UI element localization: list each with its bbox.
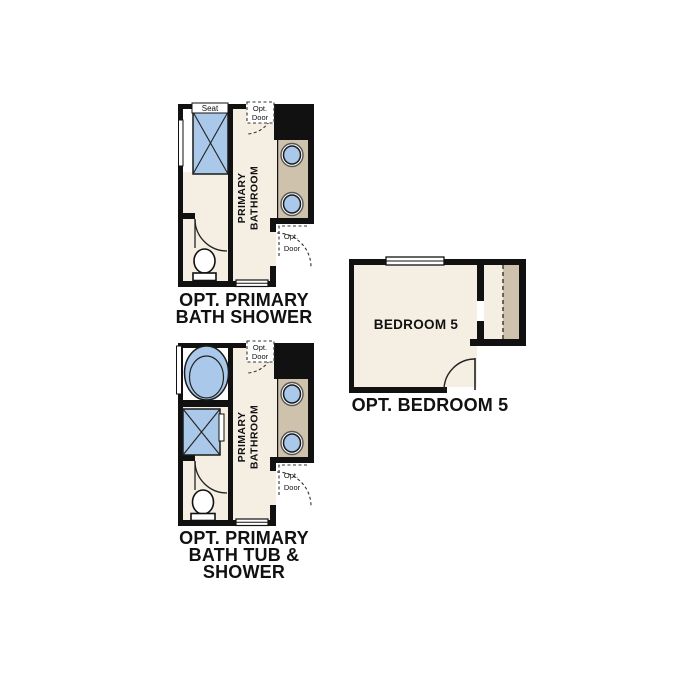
- svg-text:Opt.: Opt.: [253, 343, 267, 352]
- room-name: PRIMARY BATHROOM: [236, 166, 261, 230]
- svg-text:Door: Door: [252, 352, 269, 361]
- sink: [281, 383, 303, 406]
- sink: [281, 432, 303, 455]
- svg-text:Opt.: Opt.: [284, 232, 298, 241]
- shower: [183, 409, 224, 455]
- plan-opt-bedroom-5: BEDROOM 5: [345, 253, 530, 398]
- svg-text:BATHROOM: BATHROOM: [249, 166, 261, 230]
- sink: [281, 144, 303, 167]
- bath-tub-shower-caption: OPT. PRIMARY BATH TUB & SHOWER: [168, 530, 320, 581]
- svg-text:Opt.: Opt.: [284, 471, 298, 480]
- toilet: [193, 249, 216, 281]
- toilet: [191, 490, 215, 521]
- floorplan-sheet: Seat Opt. Door Opt. Door PRIMARY B: [0, 0, 687, 687]
- bath-shower-caption: OPT. PRIMARY BATH SHOWER: [168, 292, 320, 326]
- caption-line: BATH SHOWER: [168, 309, 320, 326]
- svg-text:Door: Door: [252, 113, 269, 122]
- caption-line: SHOWER: [168, 564, 320, 581]
- svg-text:PRIMARY: PRIMARY: [236, 412, 248, 463]
- room-name: BEDROOM 5: [374, 317, 459, 332]
- plan-opt-primary-bath-shower: Seat Opt. Door Opt. Door PRIMARY B: [176, 98, 316, 290]
- closet: [484, 265, 519, 339]
- sink: [281, 193, 303, 216]
- window: [236, 280, 268, 287]
- svg-text:Door: Door: [284, 483, 301, 492]
- seat-label: Seat: [202, 104, 219, 113]
- svg-text:BATHROOM: BATHROOM: [249, 405, 261, 469]
- window: [386, 257, 444, 265]
- svg-text:Opt.: Opt.: [253, 104, 267, 113]
- window: [236, 519, 268, 526]
- caption-line: OPT. BEDROOM 5: [348, 397, 512, 414]
- room-name: PRIMARY BATHROOM: [236, 405, 261, 469]
- plan-opt-primary-bath-tub-shower: Opt. Door Opt. Door PRIMARY BATHROOM: [176, 337, 316, 529]
- svg-text:PRIMARY: PRIMARY: [236, 173, 248, 224]
- bedroom-5-caption: OPT. BEDROOM 5: [348, 397, 512, 414]
- svg-text:Door: Door: [284, 244, 301, 253]
